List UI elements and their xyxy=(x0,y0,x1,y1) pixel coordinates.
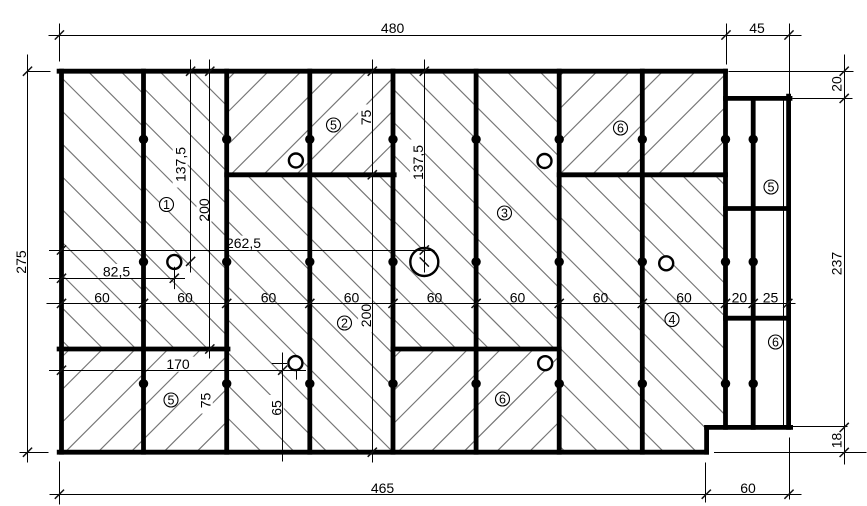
svg-text:6: 6 xyxy=(772,335,779,349)
svg-text:45: 45 xyxy=(749,20,765,36)
svg-text:6: 6 xyxy=(617,121,624,135)
svg-text:1: 1 xyxy=(163,198,170,212)
svg-text:60: 60 xyxy=(344,289,360,305)
svg-text:200: 200 xyxy=(358,304,374,328)
svg-text:60: 60 xyxy=(740,480,756,496)
svg-text:75: 75 xyxy=(198,393,214,409)
svg-text:170: 170 xyxy=(166,356,190,372)
svg-text:137,5: 137,5 xyxy=(410,145,426,180)
svg-text:60: 60 xyxy=(427,289,443,305)
svg-text:262,5: 262,5 xyxy=(226,235,261,251)
svg-text:60: 60 xyxy=(676,289,692,305)
svg-text:82,5: 82,5 xyxy=(103,263,130,279)
svg-text:5: 5 xyxy=(768,180,775,194)
svg-text:200: 200 xyxy=(196,198,212,222)
svg-text:275: 275 xyxy=(13,250,29,274)
svg-text:137,5: 137,5 xyxy=(172,147,188,182)
svg-text:60: 60 xyxy=(593,289,609,305)
svg-text:18: 18 xyxy=(829,433,845,449)
svg-text:5: 5 xyxy=(168,393,175,407)
svg-text:65: 65 xyxy=(268,400,284,416)
svg-text:20: 20 xyxy=(829,76,845,92)
svg-text:60: 60 xyxy=(94,289,110,305)
svg-text:20: 20 xyxy=(732,289,748,305)
svg-text:237: 237 xyxy=(829,252,845,276)
svg-text:4: 4 xyxy=(669,313,676,327)
svg-text:75: 75 xyxy=(358,110,374,126)
svg-text:60: 60 xyxy=(261,289,277,305)
svg-text:60: 60 xyxy=(177,289,193,305)
svg-text:480: 480 xyxy=(381,20,405,36)
svg-text:3: 3 xyxy=(501,206,508,220)
svg-text:2: 2 xyxy=(341,316,348,330)
svg-text:6: 6 xyxy=(499,392,506,406)
svg-text:25: 25 xyxy=(763,289,779,305)
svg-text:60: 60 xyxy=(510,289,526,305)
svg-text:465: 465 xyxy=(371,480,395,496)
svg-text:5: 5 xyxy=(330,118,337,132)
